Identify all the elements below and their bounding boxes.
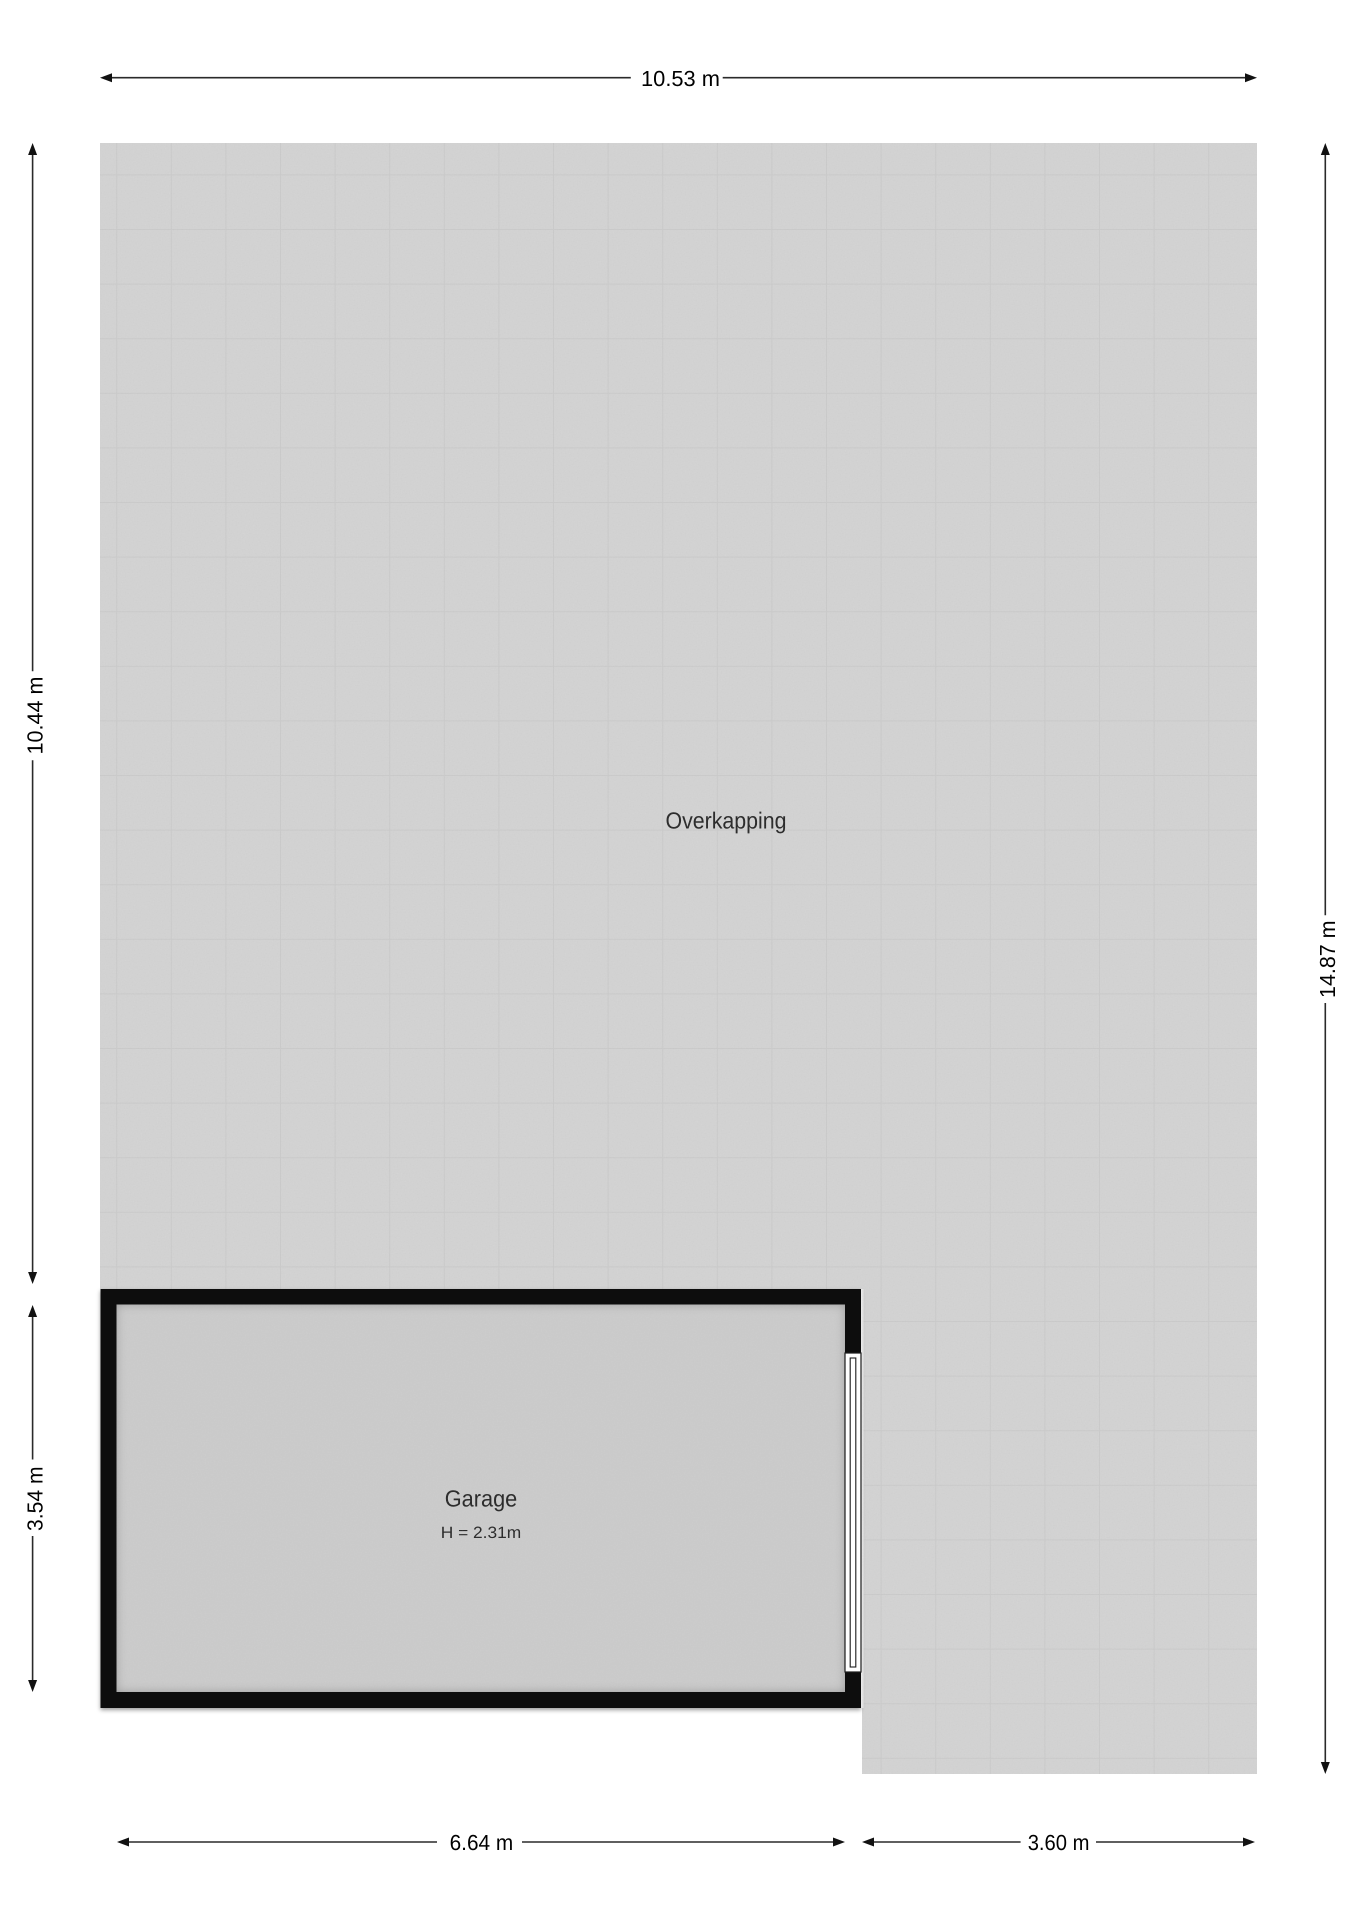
svg-text:6.64 m: 6.64 m bbox=[450, 1830, 514, 1855]
svg-text:14.87 m: 14.87 m bbox=[1315, 920, 1340, 998]
svg-text:3.54 m: 3.54 m bbox=[22, 1466, 47, 1531]
svg-text:10.53 m: 10.53 m bbox=[641, 66, 720, 91]
svg-text:3.60 m: 3.60 m bbox=[1028, 1830, 1090, 1855]
svg-text:10.44 m: 10.44 m bbox=[22, 677, 47, 755]
